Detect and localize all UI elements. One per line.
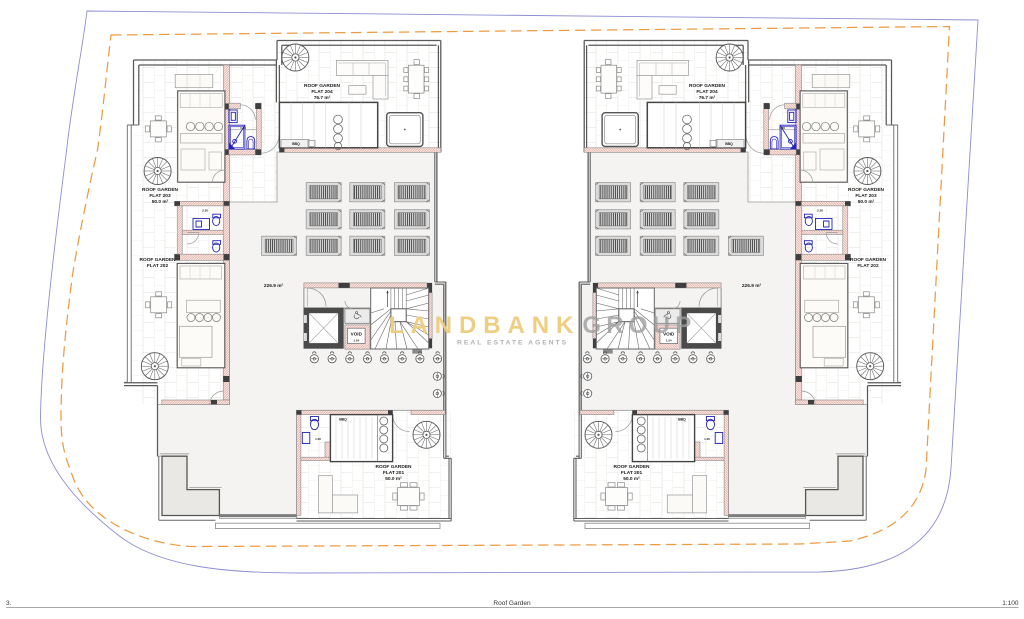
svg-text:226.9 m²: 226.9 m²	[742, 283, 762, 289]
svg-text:FLAT 203: FLAT 203	[149, 193, 171, 199]
svg-text:BBQ: BBQ	[292, 142, 300, 146]
svg-text:FLAT 204: FLAT 204	[696, 89, 718, 95]
svg-text:FLAT 204: FLAT 204	[311, 89, 333, 95]
svg-text:3.: 3.	[6, 600, 12, 607]
svg-text:BBQ: BBQ	[678, 418, 686, 422]
svg-text:50.0 m²: 50.0 m²	[858, 199, 875, 205]
svg-text:FLAT 202: FLAT 202	[147, 263, 169, 269]
svg-text:2.30: 2.30	[817, 209, 823, 213]
svg-text:2.30: 2.30	[202, 209, 208, 213]
svg-text:1.30: 1.30	[315, 437, 321, 441]
svg-text:ROOF GARDEN: ROOF GARDEN	[142, 187, 179, 193]
svg-text:226.9 m²: 226.9 m²	[264, 283, 284, 289]
svg-text:ROOF GARDEN: ROOF GARDEN	[376, 464, 413, 470]
svg-text:BBQ: BBQ	[339, 418, 347, 422]
svg-text:FLAT 202: FLAT 202	[857, 263, 879, 269]
svg-text:GROUP: GROUP	[582, 312, 696, 339]
svg-text:ROOF GARDEN: ROOF GARDEN	[850, 257, 887, 263]
svg-text:ROOF GARDEN: ROOF GARDEN	[304, 83, 341, 89]
svg-text:1.60: 1.60	[779, 126, 785, 130]
svg-text:1.30: 1.30	[704, 437, 710, 441]
svg-text:FLAT 201: FLAT 201	[383, 470, 405, 476]
svg-text:REAL ESTATE AGENTS: REAL ESTATE AGENTS	[457, 339, 568, 346]
svg-text:50.0 m²: 50.0 m²	[385, 476, 402, 482]
svg-text:ROOF GARDEN: ROOF GARDEN	[689, 83, 726, 89]
svg-text:1.60: 1.60	[240, 126, 246, 130]
svg-text:50.0 m²: 50.0 m²	[623, 476, 640, 482]
svg-text:50.0 m²: 50.0 m²	[152, 199, 169, 205]
svg-text:76.7 m²: 76.7 m²	[314, 95, 331, 101]
svg-text:ROOF GARDEN: ROOF GARDEN	[614, 464, 651, 470]
svg-text:1.24: 1.24	[666, 339, 672, 343]
svg-text:LANDBANK: LANDBANK	[389, 312, 580, 339]
svg-text:ROOF GARDEN: ROOF GARDEN	[140, 257, 177, 263]
svg-text:Roof Garden: Roof Garden	[493, 600, 531, 607]
svg-text:VOID: VOID	[351, 332, 363, 337]
svg-text:FLAT 203: FLAT 203	[855, 193, 877, 199]
svg-text:1:100: 1:100	[1002, 600, 1019, 607]
svg-text:FLAT 201: FLAT 201	[621, 470, 643, 476]
svg-text:ROOF GARDEN: ROOF GARDEN	[848, 187, 885, 193]
svg-text:1.24: 1.24	[353, 339, 359, 343]
svg-text:76.7 m²: 76.7 m²	[699, 95, 716, 101]
svg-text:BBQ: BBQ	[725, 142, 733, 146]
